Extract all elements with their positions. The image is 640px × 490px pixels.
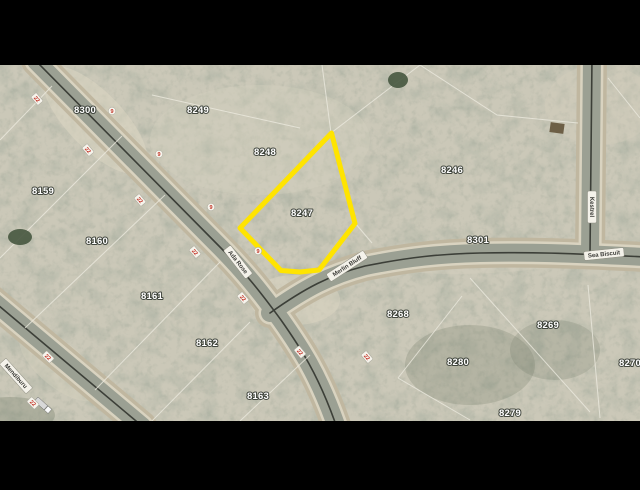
parcel-label-8270: 8270 (619, 358, 640, 369)
parcel-label-8163: 8163 (247, 391, 269, 402)
parcel-map-svg: 22 22 22 22 22 22 22 22 22 9 9 9 9 Ada R… (0, 65, 640, 421)
parcel-label-8248: 8248 (254, 147, 276, 158)
road-marker: 9 (207, 203, 214, 211)
road-marker: 9 (108, 107, 115, 115)
small-building (549, 122, 564, 134)
svg-text:9: 9 (110, 109, 113, 115)
parcel-label-8269: 8269 (537, 320, 559, 331)
svg-text:9: 9 (157, 152, 160, 158)
parcel-label-8162: 8162 (196, 338, 218, 349)
svg-text:9: 9 (209, 205, 212, 211)
street-name-label: Kestrel (588, 191, 597, 223)
tree-patch (8, 229, 32, 245)
parcel-label-8280: 8280 (447, 357, 469, 368)
parcel-label-8301: 8301 (467, 235, 489, 246)
road-marker: 9 (155, 150, 162, 158)
parcel-label-8159: 8159 (32, 186, 54, 197)
parcel-label-8268: 8268 (387, 309, 409, 320)
parcel-label-8279: 8279 (499, 408, 521, 419)
parcel-label-8246: 8246 (441, 165, 463, 176)
map-canvas[interactable]: 22 22 22 22 22 22 22 22 22 9 9 9 9 Ada R… (0, 65, 640, 421)
bottom-letterbox (0, 421, 640, 490)
tree-patch (388, 72, 408, 88)
parcel-label-8300: 8300 (74, 105, 96, 116)
svg-text:9: 9 (256, 249, 259, 255)
screenshot-root: 22 22 22 22 22 22 22 22 22 9 9 9 9 Ada R… (0, 0, 640, 490)
parcel-label-8160: 8160 (86, 236, 108, 247)
parcel-label-8247: 8247 (291, 208, 313, 219)
top-letterbox (0, 0, 640, 65)
parcel-label-8249: 8249 (187, 105, 209, 116)
road-marker: 9 (254, 247, 261, 255)
parcel-label-8161: 8161 (141, 291, 163, 302)
svg-text:Kestrel: Kestrel (588, 197, 594, 218)
